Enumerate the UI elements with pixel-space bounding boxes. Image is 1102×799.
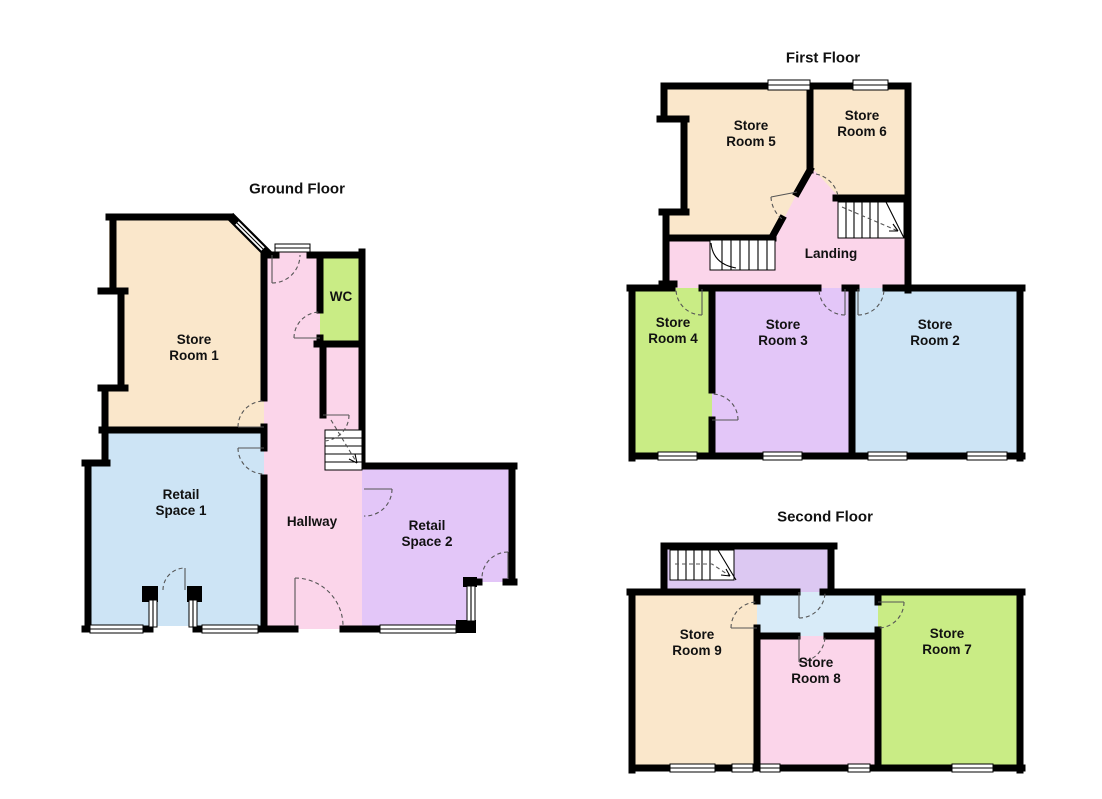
first-floor-title: First Floor	[786, 50, 860, 67]
store-room-2-label: Store Room 2	[902, 317, 968, 349]
second-floor-title: Second Floor	[777, 509, 873, 526]
landing-label: Landing	[805, 246, 858, 262]
retail-space-1-floor	[85, 430, 264, 626]
ground-floor-title: Ground Floor	[249, 181, 345, 198]
hall-floor	[757, 592, 878, 638]
store-room-1-label: Store Room 1	[161, 332, 227, 364]
store-room-4-floor	[632, 288, 712, 458]
store-room-8-label: Store Room 8	[783, 655, 849, 687]
store-room-9-floor	[632, 592, 757, 770]
store-room-6-label: Store Room 6	[829, 108, 895, 140]
ground-floor-plan	[85, 214, 514, 633]
floorplan-page: Ground Floor Store Room 1 WC Retail Spac…	[0, 0, 1102, 799]
store-room-7-label: Store Room 7	[914, 626, 980, 658]
store-room-7-floor	[878, 592, 1020, 770]
retail-space-1-label: Retail Space 1	[148, 487, 214, 519]
store-room-3-floor	[712, 288, 852, 458]
floorplan-drawing	[0, 0, 1102, 799]
store-room-9-label: Store Room 9	[664, 627, 730, 659]
store-room-1-floor	[102, 214, 270, 430]
store-room-4-label: Store Room 4	[640, 315, 706, 347]
hallway-label: Hallway	[287, 514, 337, 530]
first-floor-plan	[630, 80, 1022, 460]
store-room-6-floor	[812, 86, 910, 200]
store-room-5-label: Store Room 5	[718, 118, 784, 150]
retail-space-2-label: Retail Space 2	[394, 518, 460, 550]
wc-label: WC	[330, 289, 353, 305]
store-room-2-floor	[852, 288, 1020, 458]
store-room-3-label: Store Room 3	[750, 317, 816, 349]
second-floor-stairs	[670, 550, 736, 580]
